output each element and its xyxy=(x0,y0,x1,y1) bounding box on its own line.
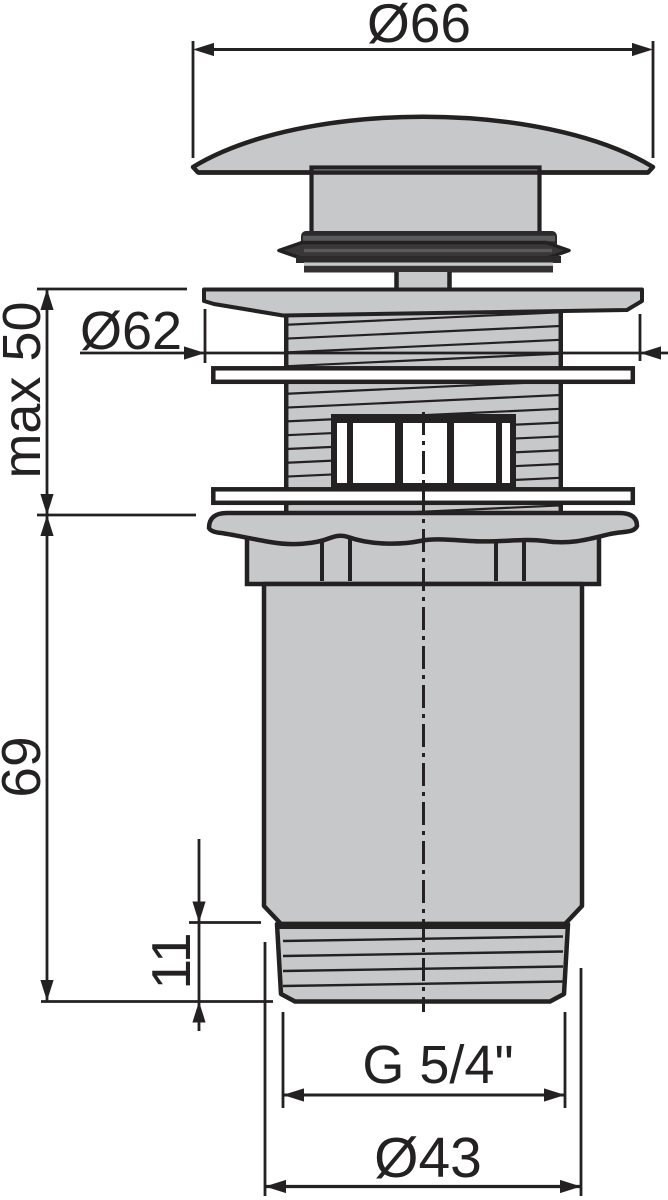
svg-text:Ø43: Ø43 xyxy=(374,1126,482,1190)
svg-text:Ø62: Ø62 xyxy=(80,301,182,361)
svg-text:Ø66: Ø66 xyxy=(367,0,471,54)
svg-text:G 5/4": G 5/4" xyxy=(362,1035,513,1095)
svg-text:11: 11 xyxy=(140,932,202,989)
svg-text:69: 69 xyxy=(0,736,52,797)
svg-text:max 50: max 50 xyxy=(0,301,52,478)
